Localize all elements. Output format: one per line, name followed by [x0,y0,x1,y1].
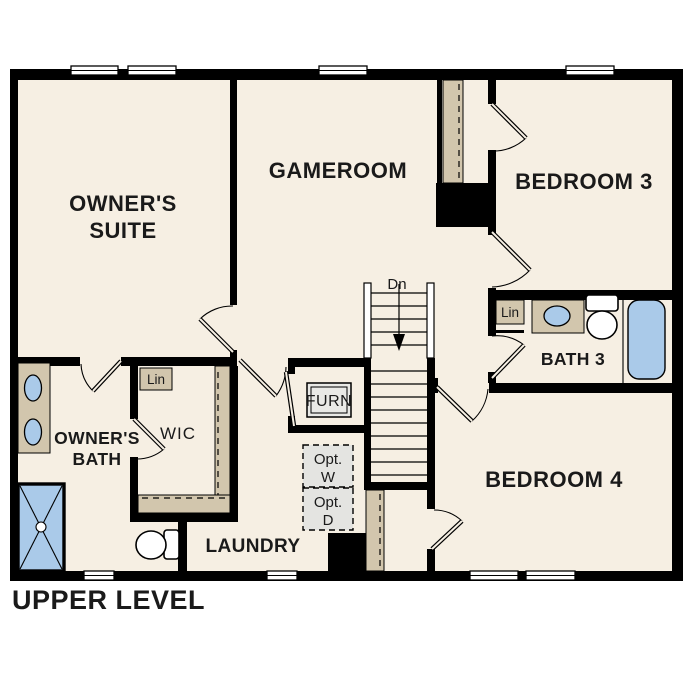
floor-plan-page: OWNER'S SUITE GAMEROOM BEDROOM 3 BATH 3 … [0,0,687,687]
window [84,571,114,580]
bath3-vanity [532,300,584,333]
shower [18,484,64,571]
label-furnace: FURN [306,393,352,410]
window [526,571,575,580]
room-label-bath3: BATH 3 [541,349,605,369]
window [319,66,367,75]
room-label-owners-suite-line1: OWNER'S [69,191,177,216]
window [128,66,176,75]
label-wic-linen: Lin [147,372,165,387]
room-label-gameroom: GAMEROOM [269,158,407,183]
window [267,571,297,580]
label-opt-washer-line2: W [321,469,336,486]
chase [436,183,496,227]
label-opt-dryer-line1: Opt. [314,494,342,511]
toilet-bath3 [586,295,618,339]
label-opt-dryer-line2: D [323,512,334,529]
window [470,571,518,580]
floor-plan: OWNER'S SUITE GAMEROOM BEDROOM 3 BATH 3 … [0,0,687,687]
window [566,66,614,75]
room-label-bedroom3: BEDROOM 3 [515,169,653,194]
bathtub [623,300,665,383]
label-bath3-linen: Lin [501,305,519,320]
toilet-owners-bath [136,530,179,559]
label-stairs-down: Dn [387,276,406,293]
owners-bath-vanity [18,363,50,453]
room-label-bedroom4: BEDROOM 4 [485,467,623,492]
plan-title: UPPER LEVEL [12,585,205,615]
room-label-wic: WIC [160,424,196,443]
room-label-owners-bath-line2: BATH [73,449,122,469]
room-label-owners-bath-line1: OWNER'S [54,428,140,448]
room-label-laundry: LAUNDRY [206,536,301,557]
room-label-owners-suite-line2: SUITE [89,218,156,243]
label-opt-washer-line1: Opt. [314,451,342,468]
chase [328,533,371,571]
window [71,66,118,75]
